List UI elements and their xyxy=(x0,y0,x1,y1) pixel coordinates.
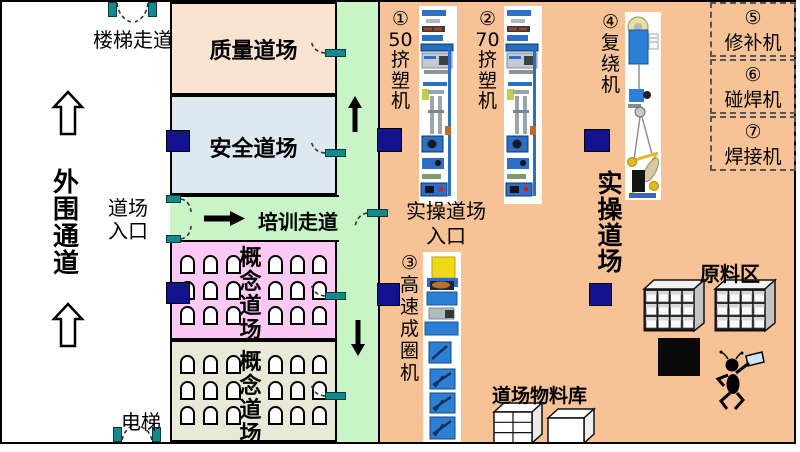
seat-icon xyxy=(268,306,283,325)
seat-icon xyxy=(203,355,218,374)
stairway-corridor-label: 楼梯走道 xyxy=(93,24,173,53)
door-icon xyxy=(148,2,157,17)
seat-icon xyxy=(312,306,327,325)
seat-icon xyxy=(290,355,305,374)
seat-icon xyxy=(203,281,218,300)
practical-dojo-label: 实操道场 xyxy=(596,171,624,275)
door-icon xyxy=(325,292,346,300)
machine-3-number: ③ xyxy=(401,252,418,274)
machine-3-name: 高速成圈机 xyxy=(400,274,419,384)
seat-icon xyxy=(203,306,218,325)
concept-dojo-label: 概念道场 xyxy=(238,351,263,447)
seat-icon xyxy=(290,281,305,300)
seat-icon xyxy=(180,255,195,274)
door-icon xyxy=(325,392,346,400)
concept-dojo-label: 概念道场 xyxy=(238,247,263,343)
material-store-box xyxy=(545,404,597,444)
machine-5-number: ⑤ xyxy=(712,6,794,31)
seat-icon xyxy=(180,355,195,374)
up-arrow-icon xyxy=(54,92,82,134)
machine-4-label: ④复绕机 xyxy=(597,12,624,96)
machine-3-label: ③高速成圈机 xyxy=(396,252,423,384)
machine-2-extruder-image xyxy=(504,6,542,204)
machine-6-name: 碰焊机 xyxy=(712,88,794,113)
seat-icon xyxy=(180,406,195,425)
quality-dojo-label: 质量道场 xyxy=(170,33,337,65)
machine-7-name: 焊接机 xyxy=(712,145,794,170)
machine-4-rewinder-image xyxy=(625,12,661,200)
machine-2-name: 70挤塑机 xyxy=(475,29,499,113)
training-corridor-label: 培训走道 xyxy=(258,206,338,235)
seat-icon xyxy=(180,306,195,325)
seat-icon xyxy=(290,406,305,425)
raw-material-label: 原料区 xyxy=(700,258,760,287)
seat-icon xyxy=(203,406,218,425)
seat-icon xyxy=(180,381,195,400)
machine-4-name: 复绕机 xyxy=(601,32,620,96)
display-board xyxy=(589,283,612,306)
door-icon xyxy=(166,195,181,203)
safety-dojo-label: 安全道场 xyxy=(170,131,337,163)
seat-icon xyxy=(268,355,283,374)
material-store-label: 道场物料库 xyxy=(492,381,587,408)
machine-4-number: ④ xyxy=(602,11,619,33)
machine-6-number: ⑥ xyxy=(712,63,794,88)
machine-1-extruder-image xyxy=(419,6,457,204)
corridor-junction xyxy=(337,197,378,240)
seat-icon xyxy=(290,381,305,400)
seat-icon xyxy=(268,406,283,425)
seat-icon xyxy=(290,306,305,325)
raw-material-shelf xyxy=(641,277,707,333)
seat-icon xyxy=(312,406,327,425)
display-board xyxy=(584,129,610,152)
factory-dojo-floorplan: 楼梯走道 外围通道 道场入口 电梯 质量道场 安全道场 培训走道 概念道场 概念… xyxy=(0,0,800,452)
display-board xyxy=(166,282,190,304)
mascot-figure xyxy=(712,350,768,414)
machine-5-name: 修补机 xyxy=(712,31,794,56)
machine-1-name: 50挤塑机 xyxy=(388,29,412,113)
up-arrow-icon xyxy=(54,304,82,346)
display-board xyxy=(377,128,402,152)
seat-icon xyxy=(203,255,218,274)
machine-3-coiler-image xyxy=(423,252,461,448)
seat-icon xyxy=(268,255,283,274)
equipment-box-6: ⑥ 碰焊机 xyxy=(710,59,796,114)
machine-1-label: ①50挤塑机 xyxy=(387,9,414,112)
elevator-label: 电梯 xyxy=(121,406,161,435)
seat-icon xyxy=(312,355,327,374)
door-icon xyxy=(108,2,117,17)
seat-icon xyxy=(268,381,283,400)
seat-icon xyxy=(290,255,305,274)
door-swing-arc xyxy=(135,3,148,22)
practical-entrance-label: 实操道场入口 xyxy=(400,199,492,249)
machine-1-number: ① xyxy=(392,8,409,30)
equipment-box-5: ⑤ 修补机 xyxy=(710,2,796,57)
perimeter-corridor-label: 外围通道 xyxy=(51,170,81,278)
seat-icon xyxy=(203,381,218,400)
door-icon xyxy=(367,209,388,217)
machine-2-label: ②70挤塑机 xyxy=(474,9,501,112)
black-area-marker xyxy=(658,338,700,376)
equipment-box-7: ⑦ 焊接机 xyxy=(710,116,796,171)
seat-icon xyxy=(268,281,283,300)
seat-icon xyxy=(312,255,327,274)
door-swing-arc xyxy=(117,3,131,22)
machine-7-number: ⑦ xyxy=(712,120,794,145)
machine-2-number: ② xyxy=(479,8,496,30)
door-icon xyxy=(166,235,181,243)
dojo-entrance-label: 道场入口 xyxy=(105,197,151,243)
